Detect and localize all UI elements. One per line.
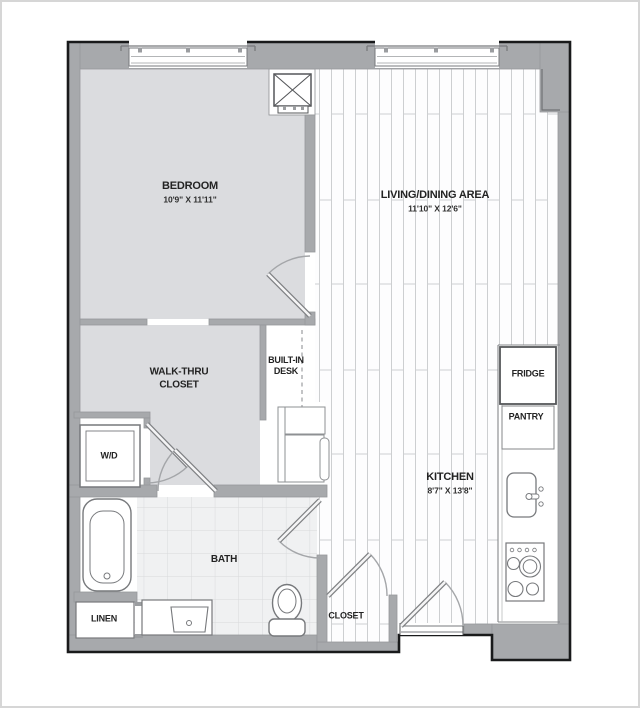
- mechanical-unit: [274, 74, 311, 113]
- wall-bath-top-right: [214, 485, 327, 497]
- label-pantry: PANTRY: [509, 411, 544, 422]
- room-label-living-dining: LIVING/DINING AREA: [381, 189, 489, 203]
- toilet: [269, 585, 305, 637]
- wall-bottom-closet: [317, 642, 399, 652]
- room-dims-kitchen: 8'7" X 13'8": [428, 486, 473, 497]
- floor-plan: BEDROOM 10'9" X 11'11" LIVING/DINING ARE…: [0, 0, 640, 708]
- wall-right: [558, 42, 570, 660]
- label-closet: CLOSET: [328, 610, 363, 621]
- desk-cabinets: [278, 407, 329, 482]
- label-fridge: FRIDGE: [512, 368, 545, 379]
- room-label-bath: BATH: [211, 554, 237, 567]
- floor-plan-drawing: [2, 2, 640, 708]
- wall-entry-jamb: [464, 624, 492, 635]
- wall-tub-linen: [74, 592, 137, 602]
- room-dims-living-dining: 11'10" X 12'6": [408, 204, 462, 215]
- wall-wd-alcove-top: [74, 412, 150, 418]
- room-label-built-in-desk: BUILT-IN DESK: [268, 355, 304, 378]
- wall-bedroom-living-upper: [305, 115, 315, 252]
- window-living: [367, 40, 507, 68]
- label-linen: LINEN: [91, 613, 117, 624]
- wall-closet-desk: [260, 325, 266, 420]
- wall-closet-right: [389, 595, 397, 642]
- label-washer-dryer: W/D: [101, 450, 118, 461]
- bathtub: [83, 499, 131, 591]
- room-label-kitchen: KITCHEN: [426, 471, 474, 485]
- wall-left: [68, 42, 80, 652]
- window-bedroom: [121, 40, 255, 68]
- wall-bedroom-bottom-right: [209, 319, 315, 325]
- entry-threshold: [400, 623, 463, 635]
- wall-bottom-kitchen: [492, 624, 570, 660]
- wall-corner-block: [540, 42, 570, 112]
- room-label-bedroom: BEDROOM: [162, 180, 218, 194]
- sink-vanity: [142, 600, 212, 635]
- wall-bedroom-bottom-left: [80, 319, 147, 325]
- stove: [506, 543, 544, 601]
- room-dims-bedroom: 10'9" X 11'11": [163, 195, 216, 206]
- wall-bath-right: [317, 555, 327, 642]
- room-label-walk-thru-closet: WALK-THRU CLOSET: [150, 367, 209, 392]
